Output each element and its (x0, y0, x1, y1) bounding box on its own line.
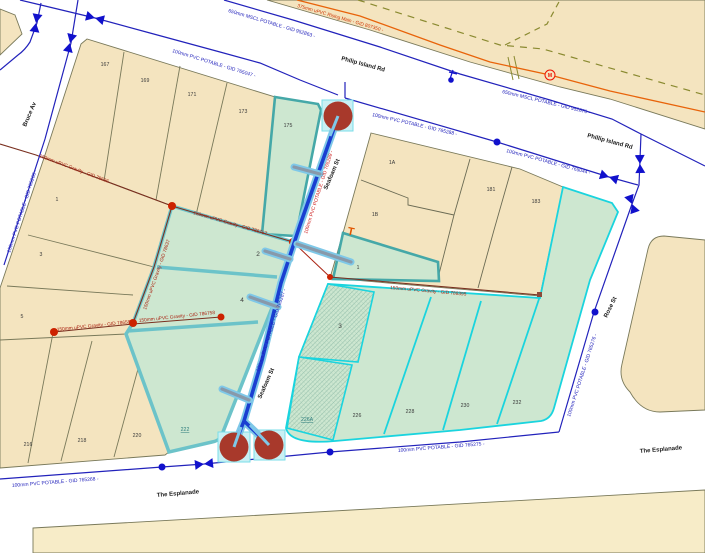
svg-text:222: 222 (181, 427, 190, 433)
svg-text:167: 167 (101, 62, 110, 68)
svg-text:171: 171 (188, 92, 197, 98)
svg-text:181: 181 (487, 187, 496, 193)
svg-text:1: 1 (357, 265, 360, 271)
svg-text:230: 230 (461, 403, 470, 409)
svg-text:4: 4 (240, 297, 244, 304)
svg-text:183: 183 (532, 199, 541, 205)
svg-text:3: 3 (338, 323, 342, 330)
svg-text:3: 3 (40, 252, 43, 258)
svg-text:2: 2 (256, 251, 260, 258)
svg-text:173: 173 (239, 109, 248, 115)
svg-text:216: 216 (24, 442, 33, 448)
svg-text:1A: 1A (389, 160, 396, 166)
svg-text:226A: 226A (301, 417, 314, 423)
svg-text:1: 1 (56, 197, 59, 203)
svg-text:228: 228 (406, 409, 415, 415)
svg-text:5: 5 (21, 314, 24, 320)
svg-text:218: 218 (78, 438, 87, 444)
svg-text:1B: 1B (372, 212, 379, 218)
svg-text:169: 169 (141, 78, 150, 84)
svg-text:175: 175 (284, 123, 293, 129)
svg-text:220: 220 (133, 433, 142, 439)
svg-text:232: 232 (513, 400, 522, 406)
svg-text:M: M (548, 73, 552, 79)
svg-text:226: 226 (353, 413, 362, 419)
